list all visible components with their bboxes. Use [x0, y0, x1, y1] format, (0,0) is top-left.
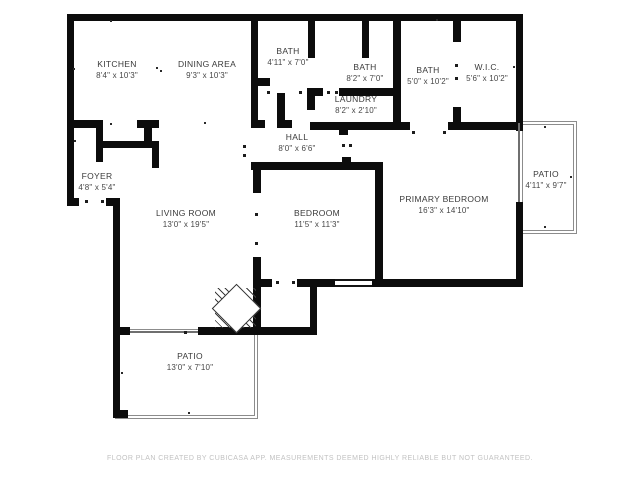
room-name: FOYER — [78, 170, 115, 182]
wall-tick — [544, 126, 546, 128]
patio-bottom-outline-inner — [118, 332, 255, 416]
wall-bedroom-bottom-right — [297, 279, 335, 287]
footer-disclaimer: FLOOR PLAN CREATED BY CUBICASA APP. MEAS… — [0, 455, 640, 462]
bedroom-window — [335, 279, 372, 287]
room-name: BEDROOM — [294, 207, 340, 219]
room-label-laundry: LAUNDRY 8'2" x 2'10" — [335, 93, 378, 116]
room-dims: 8'2" x 2'10" — [335, 105, 378, 116]
room-name: W.I.C. — [466, 61, 508, 73]
wall-bath1-bath2-divider — [308, 14, 315, 58]
wall-foyer-bottom-left — [67, 198, 79, 206]
door-jamb-dot — [349, 144, 352, 147]
room-name: LIVING ROOM — [156, 207, 216, 219]
room-name: BATH — [346, 61, 383, 73]
room-label-kitchen: KITCHEN 8'4" x 10'3" — [96, 58, 138, 81]
wall-tick — [160, 70, 162, 72]
wall-exterior-right-upper — [516, 14, 523, 131]
door-jamb-dot — [255, 213, 258, 216]
room-label-primary-bedroom: PRIMARY BEDROOM 16'3" x 14'10" — [399, 193, 488, 216]
wall-kitchen-closet-top-left — [67, 120, 103, 128]
room-label-patio-bottom: PATIO 13'0" x 7'10" — [167, 350, 213, 373]
wall-bath1-bottom — [251, 78, 270, 86]
room-name: BATH — [267, 45, 308, 57]
room-name: KITCHEN — [96, 58, 138, 70]
door-jamb-dot — [292, 281, 295, 284]
wall-exterior-right-lower — [516, 202, 523, 287]
wall-tick — [188, 412, 190, 414]
room-label-bedroom: BEDROOM 11'5" x 11'3" — [294, 207, 340, 230]
room-name: LAUNDRY — [335, 93, 378, 105]
room-label-bath-2: BATH 8'2" x 7'0" — [346, 61, 383, 84]
room-name: PRIMARY BEDROOM — [399, 193, 488, 205]
wall-tick — [436, 19, 438, 21]
room-label-living-room: LIVING ROOM 13'0" x 19'5" — [156, 207, 216, 230]
wall-tick — [110, 20, 112, 22]
wall-tick — [121, 372, 123, 374]
wall-left-lower-foot — [113, 410, 128, 418]
living-patio-sliding-door — [130, 331, 198, 333]
wall-exterior-left — [67, 14, 74, 206]
wall-bedroom-left-upper — [253, 162, 261, 193]
wall-kitchen-closet-right-bar — [152, 141, 159, 168]
wall-kitchen-closet-left-bar — [96, 128, 103, 162]
wall-tick — [570, 176, 572, 178]
door-jamb-dot — [276, 281, 279, 284]
room-name: PATIO — [525, 168, 566, 180]
room-dims: 11'5" x 11'3" — [294, 219, 340, 230]
wall-hall-left — [251, 14, 258, 128]
floor-plan-canvas: KITCHEN 8'4" x 10'3" DINING AREA 9'3" x … — [0, 0, 640, 480]
door-jamb-dot — [243, 145, 246, 148]
wall-bath2-bath3-divider — [393, 14, 401, 130]
wall-exterior-left-lower — [113, 198, 120, 418]
door-jamb-dot — [184, 331, 187, 334]
room-dims: 8'4" x 10'3" — [96, 70, 138, 81]
wall-tick — [513, 66, 515, 68]
door-jamb-dot — [455, 64, 458, 67]
door-jamb-dot — [255, 242, 258, 245]
door-jamb-dot — [243, 154, 246, 157]
room-dims: 4'8" x 5'4" — [78, 182, 115, 193]
room-name: HALL — [278, 131, 315, 143]
wall-kitchen-closet-right-leg — [144, 128, 152, 141]
room-name: PATIO — [167, 350, 213, 362]
room-label-patio-right: PATIO 4'11" x 9'7" — [525, 168, 566, 191]
room-dims: 5'0" x 10'2" — [407, 76, 449, 87]
wall-patio-stub — [120, 327, 130, 335]
wall-bedroom-top — [251, 162, 383, 170]
wall-step — [310, 284, 317, 335]
room-dims: 8'2" x 7'0" — [346, 73, 383, 84]
door-jamb-dot — [455, 77, 458, 80]
room-label-bath-3: BATH 5'0" x 10'2" — [407, 64, 449, 87]
wall-bath3-wic-divider-lower — [453, 107, 461, 130]
primary-patio-sliding-door — [518, 123, 520, 202]
wall-tick — [544, 226, 546, 228]
wall-laundry-left — [307, 93, 315, 110]
room-dims: 8'0" x 6'6" — [278, 143, 315, 154]
room-label-dining-area: DINING AREA 9'3" x 10'3" — [178, 58, 236, 81]
wall-tick — [110, 123, 112, 125]
door-jamb-dot — [342, 144, 345, 147]
wall-kitchen-closet-top-right — [137, 120, 159, 128]
wall-kitchen-closet-mid-bar — [103, 141, 159, 148]
wall-tick — [73, 68, 75, 70]
room-dims: 13'0" x 7'10" — [167, 362, 213, 373]
door-jamb-dot — [267, 91, 270, 94]
room-label-hall: HALL 8'0" x 6'6" — [278, 131, 315, 154]
wall-bath2-partition — [362, 14, 369, 58]
room-dims: 4'11" x 7'0" — [267, 57, 308, 68]
wall-tick — [156, 67, 158, 69]
door-jamb-dot — [101, 200, 104, 203]
wall-bath3-wic-divider-upper — [453, 14, 461, 42]
door-jamb-dot — [412, 131, 415, 134]
door-jamb-dot — [327, 91, 330, 94]
wall-laundry-bottom — [310, 122, 410, 130]
room-dims: 16'3" x 14'10" — [399, 205, 488, 216]
door-jamb-dot — [443, 131, 446, 134]
room-name: BATH — [407, 64, 449, 76]
room-dims: 13'0" x 19'5" — [156, 219, 216, 230]
room-dims: 4'11" x 9'7" — [525, 180, 566, 191]
room-dims: 5'6" x 10'2" — [466, 73, 508, 84]
wall-bedroom-right — [375, 162, 383, 287]
wall-hall-closet-foot — [277, 120, 292, 128]
wall-tick — [74, 140, 76, 142]
wall-primary-door-stub-upper — [339, 122, 348, 135]
room-name: DINING AREA — [178, 58, 236, 70]
wall-tick — [204, 122, 206, 124]
room-label-bath-1: BATH 4'11" x 7'0" — [267, 45, 308, 68]
room-label-wic: W.I.C. 5'6" x 10'2" — [466, 61, 508, 84]
wall-hall-left-foot — [251, 120, 265, 128]
wall-primary-bottom — [372, 279, 523, 287]
room-dims: 9'3" x 10'3" — [178, 70, 236, 81]
door-jamb-dot — [85, 200, 88, 203]
door-jamb-dot — [299, 91, 302, 94]
room-label-foyer: FOYER 4'8" x 5'4" — [78, 170, 115, 193]
